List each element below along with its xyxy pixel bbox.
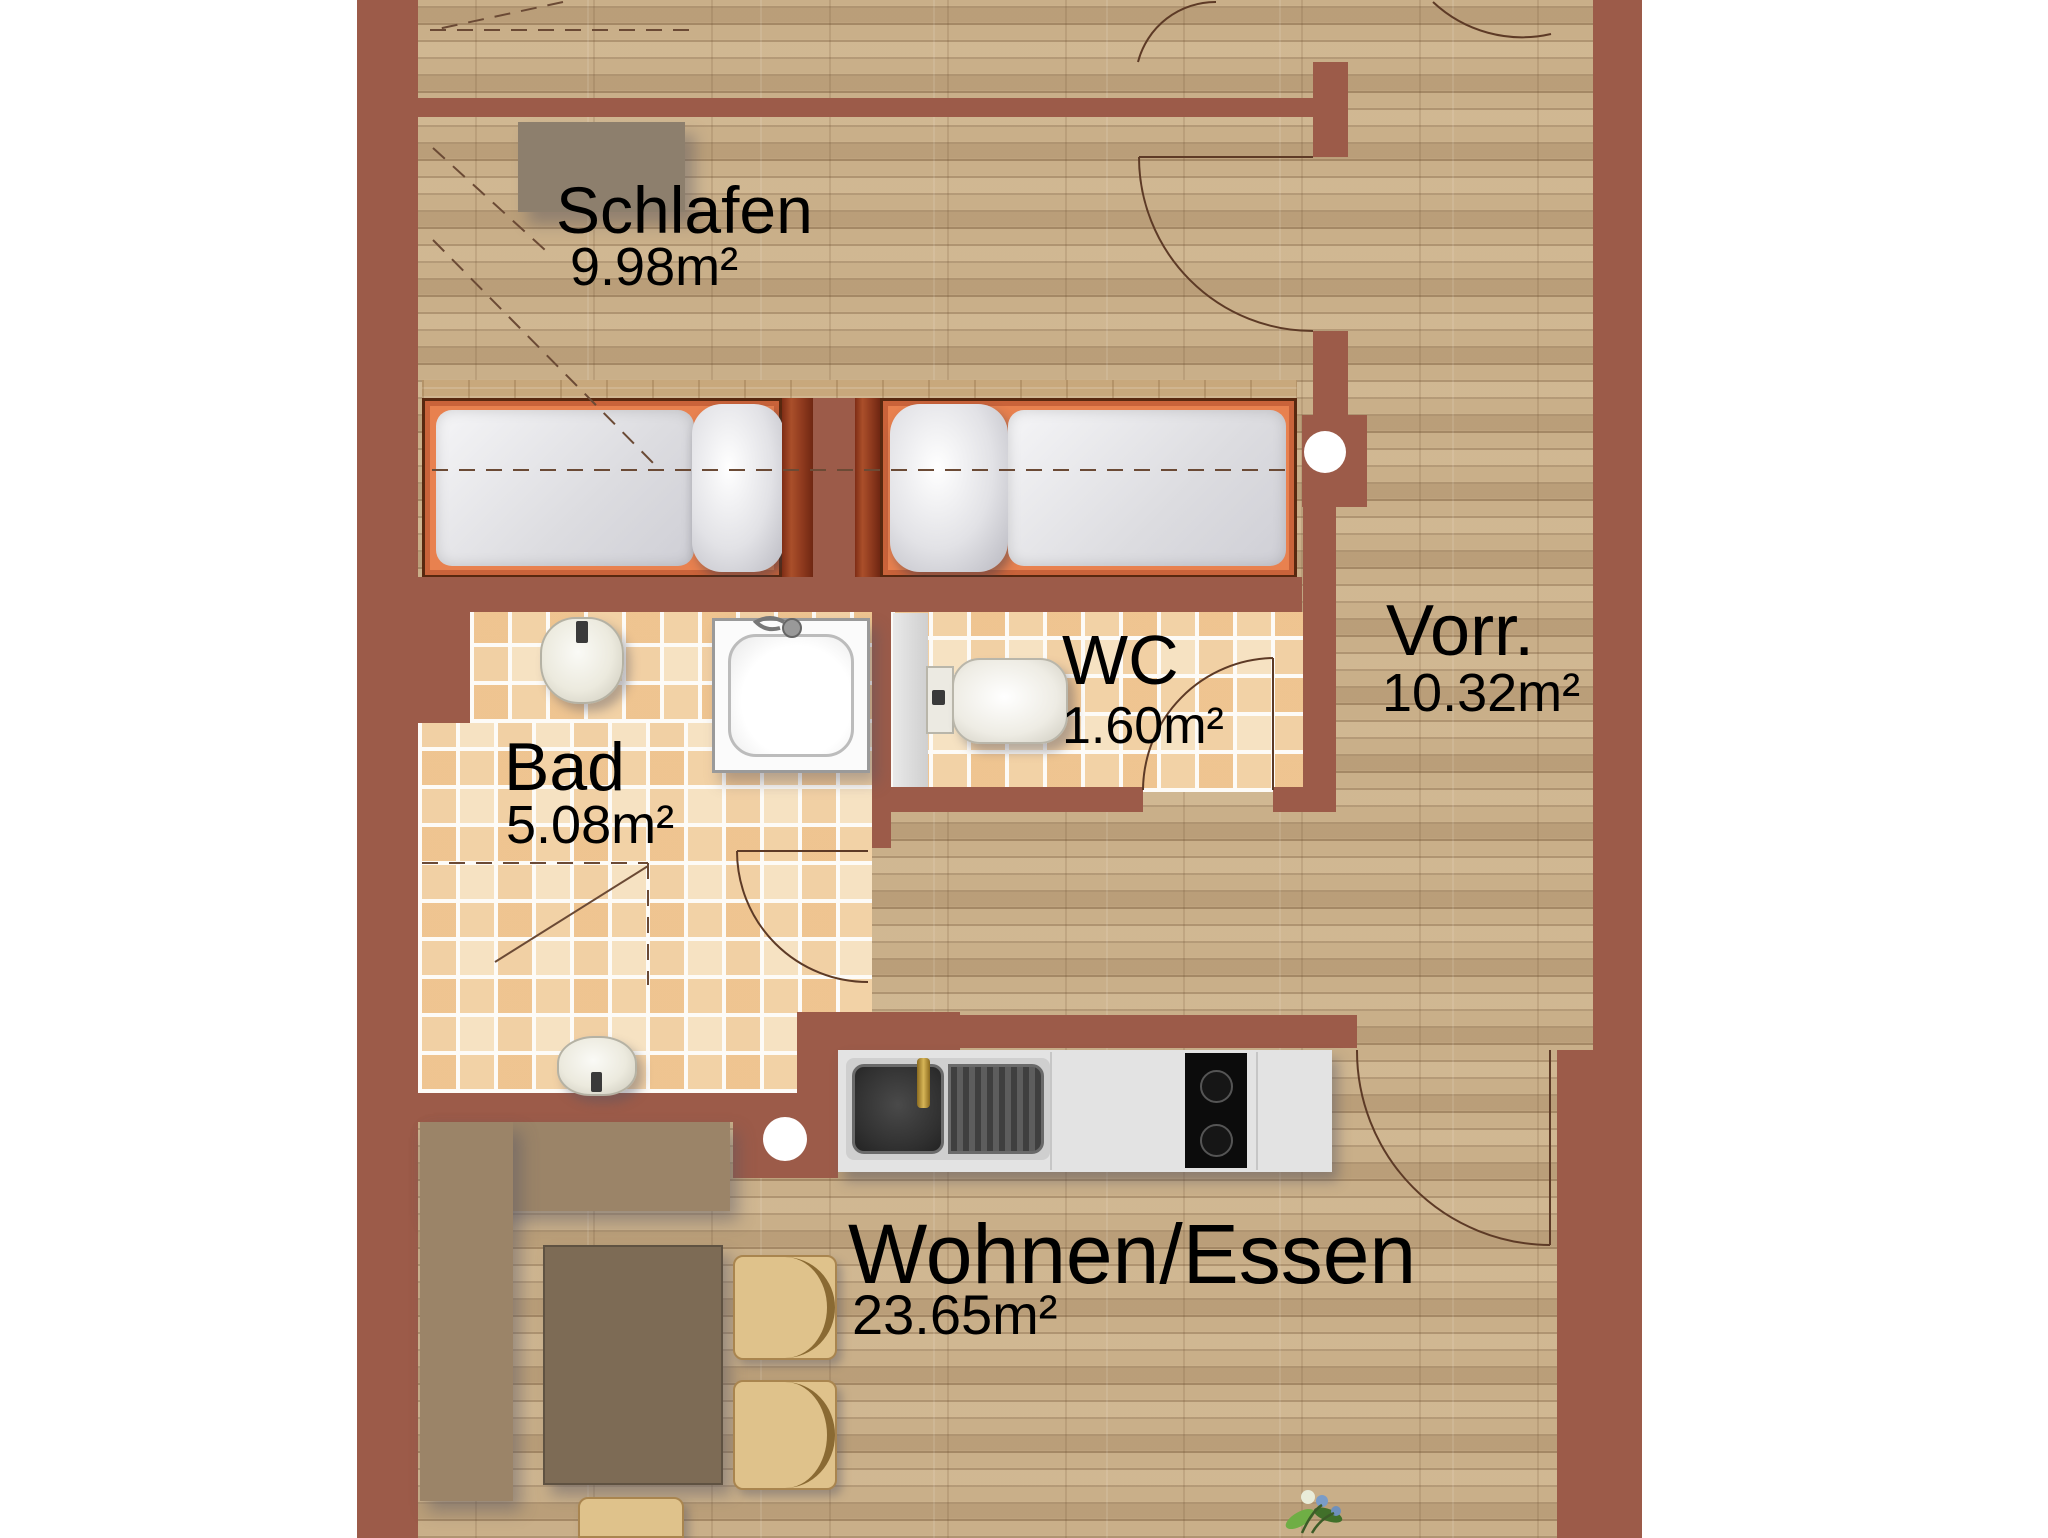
room-area-wohnen: 23.65m² (852, 1282, 1057, 1347)
door-top-room-partial (1138, 2, 1216, 62)
slope-line-top-room (430, 2, 700, 30)
room-area-vorraum: 10.32m² (1382, 662, 1580, 724)
bathroom-diagonal (495, 866, 648, 962)
slope-line-bathroom (422, 863, 648, 985)
room-area-wc: 1.60m² (1062, 696, 1224, 756)
door-entry-partial (1433, 2, 1551, 37)
room-label-wc: WC (1062, 620, 1179, 700)
room-area-schlafen: 9.98m² (570, 236, 738, 298)
door-bedroom (1139, 157, 1313, 331)
room-area-bad: 5.08m² (506, 794, 674, 856)
door-bathroom (737, 851, 868, 982)
floor-plan: Schlafen 9.98m² Bad 5.08m² WC 1.60m² Vor… (0, 0, 2048, 1538)
room-label-vorraum: Vorr. (1386, 590, 1534, 672)
shower-head-icon (756, 618, 801, 637)
